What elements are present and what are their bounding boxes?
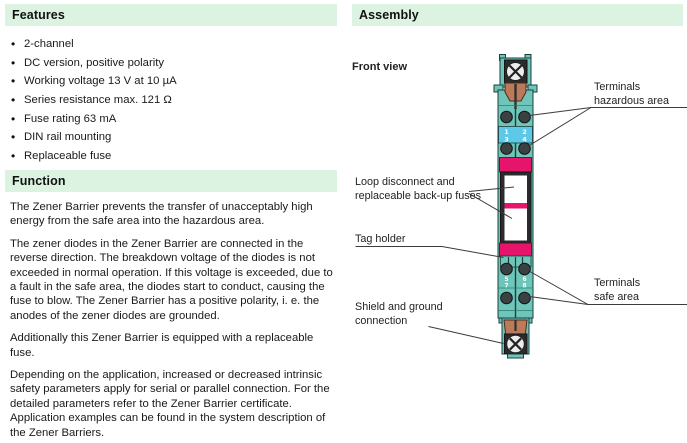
feature-item: •2-channel [11,35,335,54]
bullet-icon: • [11,74,24,88]
function-paragraph: The zener diodes in the Zener Barrier ar… [10,237,340,323]
bullet-icon: • [11,112,24,126]
terminal-screw-5 [501,263,513,275]
tag-holder-stripes [509,257,523,267]
leader-terminals-safe-2 [530,297,589,305]
bottom-tab [508,354,524,358]
feature-text: Replaceable fuse [24,150,111,162]
datasheet-page: Features •2-channel •DC version, positiv… [0,0,687,443]
terminal-number: 7 [504,284,508,290]
tag-holder [501,256,532,267]
label-line: Shield and ground [355,301,443,315]
top-ground-screw [507,63,525,81]
bullet-icon: • [11,149,24,163]
shoulder-right [528,85,537,92]
terminal-number: 3 [504,136,509,144]
terminal-numbers-hazardous: 1 2 3 4 [504,128,527,144]
fuse-divider [505,203,528,209]
function-section-header: Function [5,170,337,192]
leader-tag-holder [356,247,504,258]
bottom-step-left [499,318,505,323]
bottom-step-right [526,318,532,323]
bottom-clamp [502,318,529,354]
bullet-icon: • [11,130,24,144]
body-separators [498,106,533,311]
function-paragraph: Depending on the application, increased … [10,368,340,440]
fuse-window-1 [505,176,528,204]
device-body [498,90,533,318]
terminal-screw-1 [501,111,513,123]
label-line: Loop disconnect and [355,176,481,190]
terminal-number: 8 [522,284,526,290]
feature-text: DIN rail mounting [24,131,111,143]
terminal-number: 5 [504,277,508,283]
terminal-number: 6 [522,277,526,283]
features-list: •2-channel •DC version, positive polarit… [11,35,335,165]
front-view-label: Front view [352,61,407,73]
feature-text: Working voltage 13 V at 10 µA [24,75,177,87]
bottom-screw-frame [505,334,528,354]
feature-item: •Working voltage 13 V at 10 µA [11,72,335,91]
function-paragraph: Additionally this Zener Barrier is equip… [10,331,340,360]
label-line: safe area [594,291,640,305]
label-line: Terminals [594,81,669,95]
terminal-screw-8 [519,292,531,304]
assembly-title: Assembly [359,8,419,22]
leader-shield-ground [429,327,504,344]
label-terminals-hazardous: Terminals hazardous area [594,81,669,108]
terminal-number: 2 [522,128,527,136]
bullet-icon: • [11,93,24,107]
feature-item: •Replaceable fuse [11,147,335,166]
terminal-screws [501,111,531,304]
fuse-window-2 [505,209,528,241]
label-loop-disconnect: Loop disconnect and replaceable back-up … [355,176,481,203]
label-line: Terminals [594,277,640,291]
feature-text: DC version, positive polarity [24,57,164,69]
feature-item: •Fuse rating 63 mA [11,109,335,128]
features-section-header: Features [5,4,337,26]
top-clamp [500,58,531,87]
terminal-screw-4 [519,143,531,155]
top-tab-left [500,55,506,61]
shoulder-left [494,85,503,92]
feature-item: •Series resistance max. 121 Ω [11,91,335,110]
top-screw-frame [505,60,528,83]
bullet-icon: • [11,37,24,51]
screw-cross-icon [510,66,522,78]
label-line: replaceable back-up fuses [355,190,481,204]
feature-item: •DIN rail mounting [11,128,335,147]
fuse-cap-top [500,158,532,173]
label-terminals-safe: Terminals safe area [594,277,640,304]
label-shield-ground: Shield and ground connection [355,301,443,328]
fuse-cap-bottom [500,243,532,256]
bottom-ground-screw [507,335,525,353]
feature-text: 2-channel [24,38,74,50]
label-line: Tag holder [355,233,405,247]
terminal-number: 1 [504,128,509,136]
screw-cross-icon [510,338,521,349]
bullet-icon: • [11,56,24,70]
fuse-frame [501,172,532,245]
terminal-numbers-safe: 5 6 7 8 [504,277,526,290]
function-paragraph: The Zener Barrier prevents the transfer … [10,200,340,229]
copper-insert-bottom [504,320,527,338]
feature-item: •DC version, positive polarity [11,54,335,73]
assembly-section-header: Assembly [352,4,683,26]
function-text: The Zener Barrier prevents the transfer … [10,200,340,443]
label-tag-holder: Tag holder [355,233,405,247]
terminal-number: 4 [522,136,527,144]
zener-barrier-device: 1 2 3 4 [494,55,537,359]
terminal-screw-6 [519,263,531,275]
label-line: connection [355,315,443,329]
terminal-screw-2 [519,111,531,123]
terminal-screw-7 [501,292,513,304]
features-title: Features [12,8,65,22]
leader-terminals-hazardous [530,108,687,116]
function-title: Function [12,174,66,188]
terminal-screw-3 [501,143,513,155]
copper-insert-top [505,83,526,101]
leader-terminals-hazardous-2 [529,108,592,147]
feature-text: Series resistance max. 121 Ω [24,94,172,106]
label-line: hazardous area [594,95,669,109]
top-tab-right [525,55,531,61]
terminal-band-hazardous [499,127,533,144]
feature-text: Fuse rating 63 mA [24,113,116,125]
